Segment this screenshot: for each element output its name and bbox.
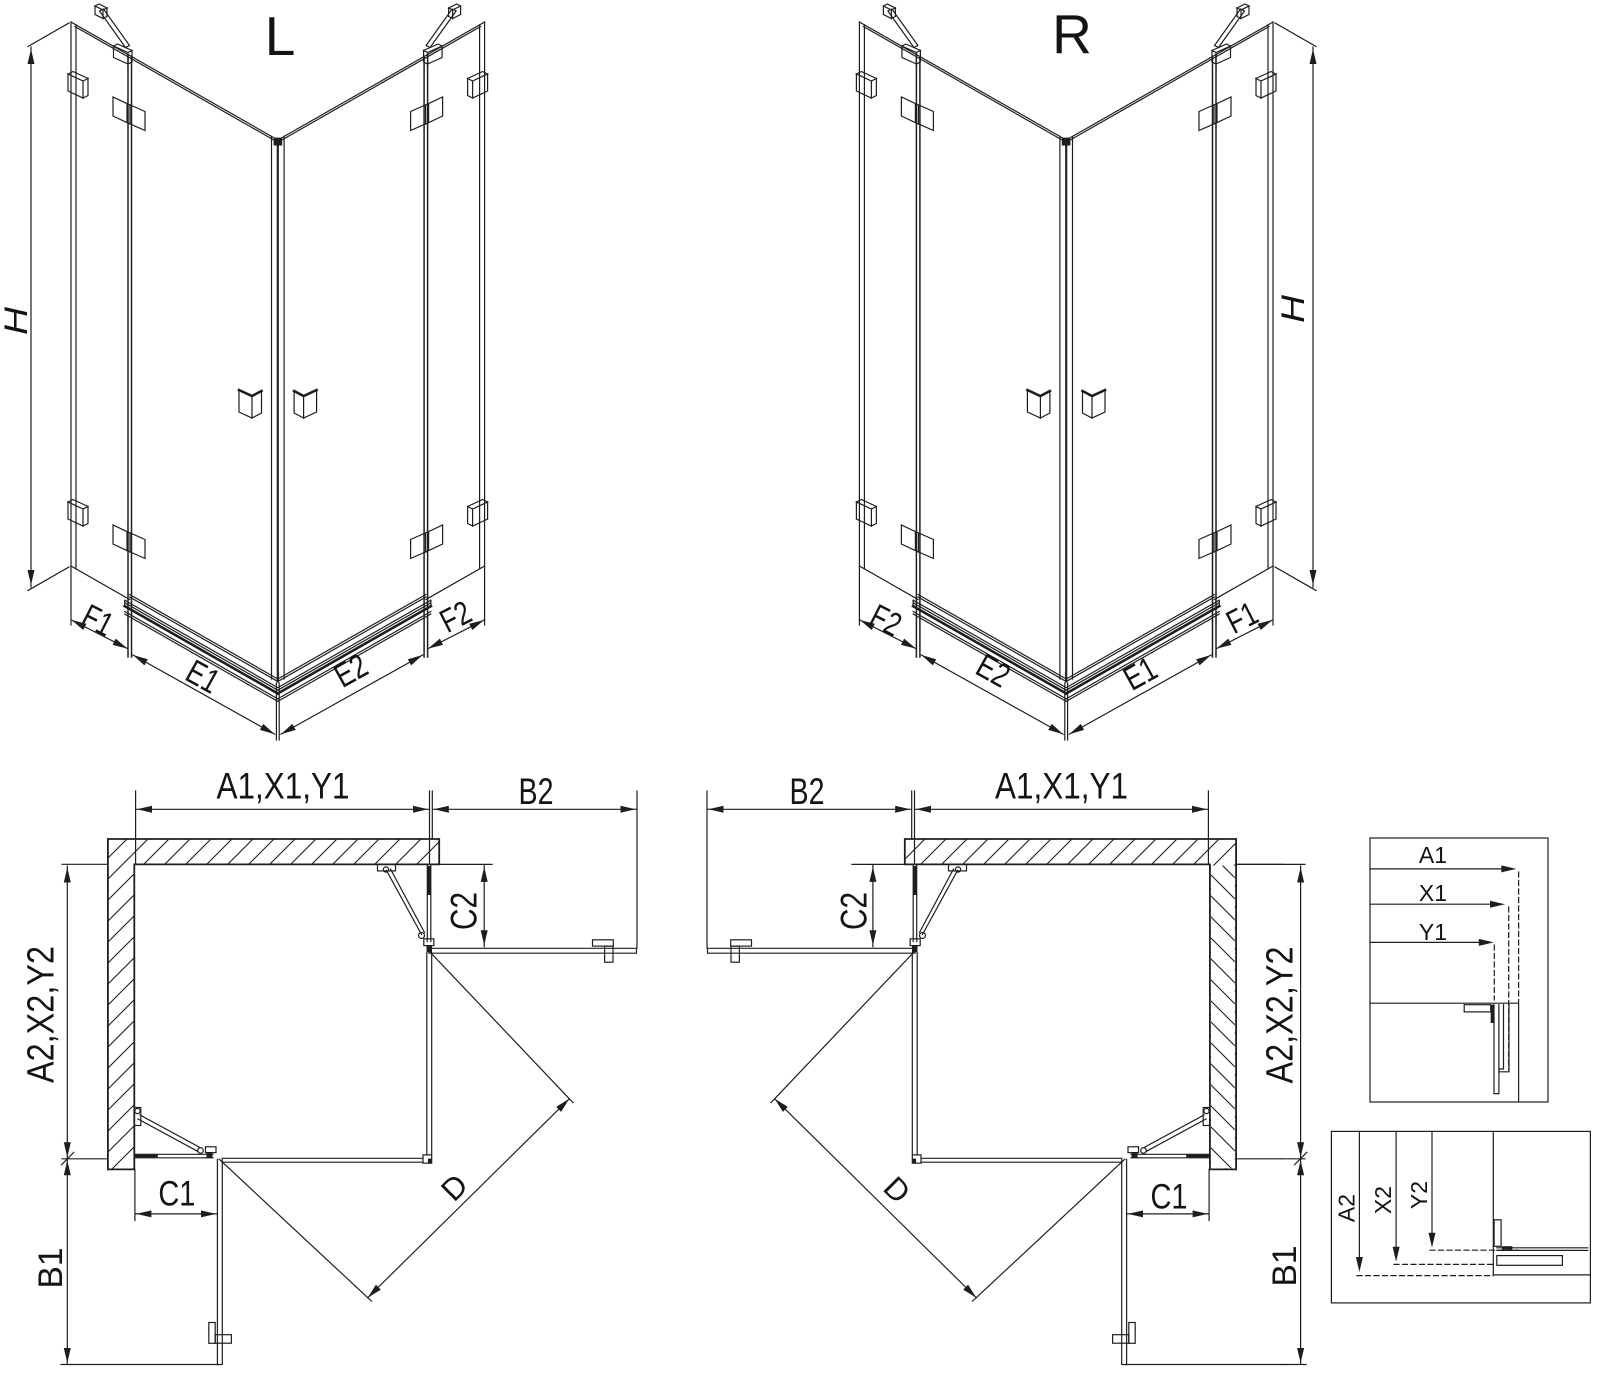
svg-text:A1,X1,Y1: A1,X1,Y1 <box>217 766 350 807</box>
svg-text:C2: C2 <box>444 892 485 930</box>
svg-text:A1,X1,Y1: A1,X1,Y1 <box>995 766 1128 807</box>
svg-text:H: H <box>1275 294 1311 323</box>
svg-text:L: L <box>265 5 296 67</box>
svg-text:A1: A1 <box>1419 842 1447 868</box>
svg-text:C1: C1 <box>158 1175 195 1214</box>
svg-text:Y2: Y2 <box>1406 1181 1432 1209</box>
svg-text:H: H <box>0 306 34 335</box>
svg-text:A2,X2,Y2: A2,X2,Y2 <box>1260 947 1302 1084</box>
svg-text:B1: B1 <box>32 1248 70 1289</box>
svg-text:R: R <box>1052 3 1092 65</box>
svg-text:A2,X2,Y2: A2,X2,Y2 <box>21 946 63 1083</box>
svg-text:C1: C1 <box>1151 1178 1188 1217</box>
svg-text:C2: C2 <box>834 892 875 930</box>
svg-text:B2: B2 <box>519 771 554 812</box>
svg-text:B1: B1 <box>1266 1246 1304 1287</box>
svg-text:X2: X2 <box>1370 1186 1396 1214</box>
svg-text:A2: A2 <box>1333 1194 1359 1222</box>
svg-text:B2: B2 <box>790 771 825 812</box>
svg-text:Y1: Y1 <box>1419 919 1447 945</box>
svg-text:X1: X1 <box>1419 880 1447 906</box>
